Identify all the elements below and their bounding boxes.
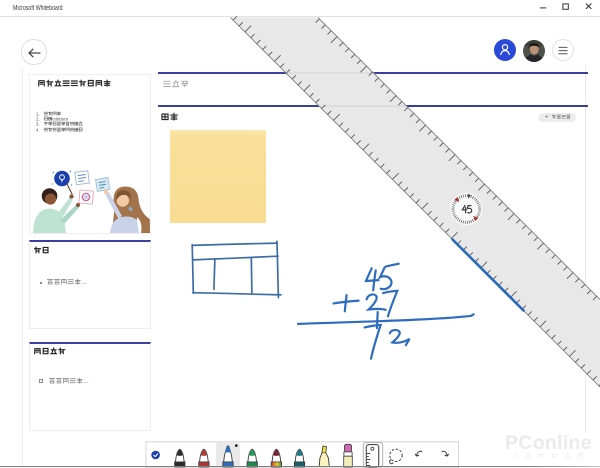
svg-text:...: ... — [83, 378, 88, 385]
svg-text:...: ... — [82, 279, 87, 286]
svg-text:+: + — [545, 114, 548, 120]
svg-text:4.: 4. — [36, 127, 40, 132]
